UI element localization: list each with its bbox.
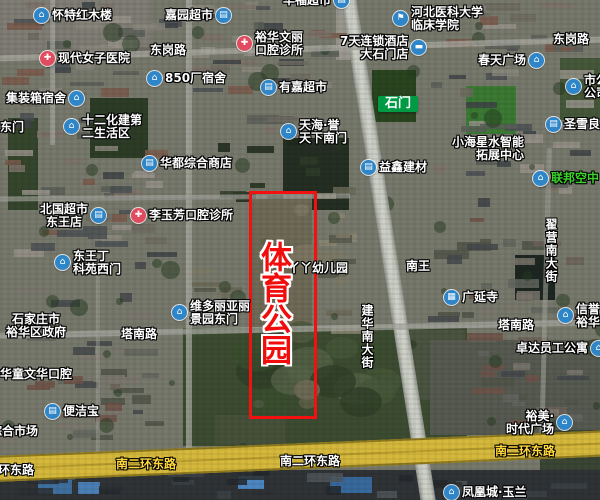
map-terrain-patch [250,183,264,189]
shop-icon[interactable]: ▤ [361,160,376,175]
map-terrain-patch [46,295,59,308]
poi-850-dorm[interactable]: ⌂850厂宿舍 [147,71,226,86]
map-terrain-patch [478,351,489,356]
map-terrain-patch [110,186,133,193]
shop-icon[interactable]: ▤ [334,0,349,8]
label-text: 南二环东路 [495,445,555,458]
map-terrain-patch [247,146,273,153]
label-text: 卓达员工公寓 [516,342,588,355]
map-terrain-patch [553,142,579,148]
label-text: 十二化建第二生活区 [82,114,142,140]
label-text: 益鑫建材 [379,161,427,174]
label-text: 南二环东路 [116,458,176,471]
map-terrain-patch [517,291,540,300]
poi-yumei-times-plaza[interactable]: 裕美·时代广场⌂ [506,410,572,436]
map-terrain-patch [523,271,532,280]
map-terrain-patch [78,482,100,494]
map-terrain-patch [112,225,132,230]
map-terrain-patch [213,60,241,65]
label-text: 东门 [0,121,24,134]
label-text: 维多丽亚丽景园东门 [190,300,250,326]
label-text: 综合市场 [0,425,38,438]
road-nanerhuan-left: 环东路 [0,464,34,477]
map-terrain-patch [557,376,589,380]
map-terrain-patch [328,212,340,224]
map-terrain-patch [484,109,503,128]
road-nanerhuan-yellow-1: 南二环东路 [116,458,176,471]
poi-xinyu-yuhua[interactable]: ⌂信誉裕华 [558,303,600,329]
map-terrain-patch [113,71,139,75]
map-terrain-patch [306,168,320,176]
shop-icon[interactable]: ▤ [216,8,231,23]
label-text: 广延寺 [462,291,498,304]
map-terrain-patch [67,434,73,440]
map-terrain-patch [277,61,308,65]
map-terrain-patch [466,102,497,108]
road-dongmen: 东门 [0,121,24,134]
map-terrain-patch [336,233,351,238]
label-text: 集装箱宿舍 [6,92,66,105]
house-icon[interactable]: ⌂ [591,341,600,356]
map-terrain-patch [105,403,122,412]
label-text: 翟营南大街 [544,218,557,283]
map-terrain-patch [564,400,579,405]
map-terrain-patch [541,3,573,8]
poi-liyufang-dental[interactable]: ✚李玉芳口腔诊所 [131,208,233,223]
map-terrain-patch [227,479,246,486]
map-terrain-patch [83,179,95,185]
poi-shengxueliang[interactable]: ▤圣雪良 [546,117,600,132]
map-terrain-patch [2,77,29,85]
map-terrain-patch [478,198,490,207]
map-terrain-patch [73,347,95,355]
map-terrain-patch [513,363,530,370]
map-terrain-patch [35,381,55,388]
map-terrain-patch [593,402,600,410]
map-terrain-patch [399,475,414,482]
label-text: 850厂宿舍 [165,72,226,85]
house-icon[interactable]: ⌂ [566,79,581,94]
poi-yixin-building-materials[interactable]: ▤益鑫建材 [361,160,427,175]
label-text: 南王 [406,260,430,273]
map-terrain-patch [18,488,53,496]
map-terrain-patch [217,491,232,500]
map-terrain-patch [481,371,495,378]
map-terrain-patch [193,88,222,92]
map-terrain-patch [254,22,264,30]
poi-zhuoda-staff-apartment[interactable]: 卓达员工公寓⌂ [516,341,600,356]
map-terrain-patch [253,491,274,495]
satellite-map-canvas[interactable]: 体育公园 ⌂怀特红木楼嘉园超市▤华福超市▤⚑河北医科大学临床学院东岗路东岗路✚现… [0,0,600,500]
map-terrain-patch [483,307,498,314]
map-terrain-patch [55,67,70,73]
map-terrain-patch [307,31,332,37]
poi-shi-gong-company[interactable]: ⌂市公公司 [566,74,600,100]
house-icon[interactable]: ⌂ [147,71,162,86]
label-text: 小海星水智能拓展中心 [452,136,524,162]
house-icon[interactable]: ⌂ [55,255,70,270]
road-jianhua-south-street: 建华南大街 [360,304,373,369]
label-text: 现代女子医院 [58,52,130,65]
label-text: 嘉园超市 [165,9,213,22]
label-text: 裕华童文华口腔 [0,368,72,381]
label-text: 天海·誉天下南门 [299,119,347,145]
label-text: 建华南大街 [360,304,373,369]
school-icon[interactable]: ⚑ [393,11,408,26]
map-terrain-patch [86,164,98,176]
map-terrain-patch [17,69,45,76]
label-text: 有嘉超市 [279,81,327,94]
map-terrain-patch [147,252,177,258]
map-terrain-patch [326,486,341,495]
medical-icon[interactable]: ✚ [40,51,55,66]
map-terrain-patch [570,150,591,156]
road-donggang-right: 东岗路 [553,33,589,46]
map-terrain-patch [81,354,104,360]
house-icon[interactable]: ⌂ [64,119,79,134]
label-text: 华福超市 [283,0,331,7]
poi-dongwang-keyuan-west-gate[interactable]: ⌂东王丁科苑西门 [55,250,121,276]
poi-jizhuangxiang-dorm[interactable]: 集装箱宿舍⌂ [6,91,84,106]
map-terrain-patch [215,415,285,445]
label-text: 华都综合商店 [160,157,232,170]
map-terrain-patch [28,33,39,40]
label-text: 怀特红木楼 [52,9,112,22]
map-terrain-patch [261,64,279,82]
map-terrain-patch [57,230,89,237]
poi-yuhuatong-wenhua-dental[interactable]: 裕华童文华口腔 [0,368,72,381]
map-terrain-patch [134,171,153,178]
map-terrain-patch [194,288,216,292]
map-terrain-patch [512,402,525,406]
map-terrain-patch [95,241,128,247]
label-text: 市公公司 [584,74,600,100]
map-terrain-patch [473,388,504,394]
map-terrain-patch [460,88,473,97]
label-text: 凤凰城·玉兰 [462,486,527,499]
road-tananlu-right: 塔南路 [498,319,534,332]
map-terrain-patch [431,82,442,88]
map-terrain-patch [447,255,462,263]
map-terrain-patch [173,477,188,482]
map-terrain-patch [9,165,25,173]
map-terrain-patch [65,159,83,164]
map-terrain-patch [407,65,420,78]
map-terrain-patch [219,281,231,293]
map-terrain-patch [169,380,175,386]
map-terrain-patch [103,23,122,42]
label-text: 丫丫幼儿园 [288,262,348,275]
map-terrain-patch [466,171,485,176]
map-terrain-patch [482,24,517,28]
poi-lianbang-kongzhong[interactable]: ⌂联邦空中 [533,171,599,186]
map-terrain-patch [145,237,167,245]
road-zhaiying-south-street: 翟营南大街 [544,218,557,283]
shop-icon[interactable]: ▤ [91,208,106,223]
shop-icon[interactable]: ▤ [261,80,276,95]
label-text: 东王丁科苑西门 [73,250,121,276]
house-icon[interactable]: ⌂ [281,124,296,139]
shop-icon[interactable]: ▤ [45,404,60,419]
house-icon[interactable]: ⌂ [444,485,459,500]
poi-shierhuajian-living-area[interactable]: ⌂十二化建第二生活区 [64,114,142,140]
poi-guangyan-temple[interactable]: ▦广延寺 [444,290,498,305]
map-terrain-patch [31,243,55,251]
poi-chuntian-plaza[interactable]: 春天广场⌂ [478,53,544,68]
map-terrain-patch [503,394,519,403]
map-terrain-patch [130,311,155,319]
map-terrain-patch [88,231,107,238]
map-terrain-patch [242,67,262,72]
map-terrain-patch [192,26,204,38]
shop-icon[interactable]: ▤ [546,117,561,132]
label-text: 东岗路 [553,33,589,46]
medical-icon[interactable]: ✚ [131,208,146,223]
map-terrain-patch [5,160,21,165]
poi-huafu-supermarket[interactable]: 华福超市▤ [283,0,349,8]
map-terrain-patch [331,313,338,320]
map-terrain-patch [481,378,515,386]
road-nanerhuan-white: 南二环东路 [280,455,340,468]
road-nanwang: 南王 [406,260,430,273]
poi-victoria-gardens-east-gate[interactable]: ⌂维多丽亚丽景园东门 [172,300,250,326]
map-terrain-patch [191,282,221,287]
label-text: 春天广场 [478,54,526,67]
map-terrain-patch [218,143,230,152]
poi-yaya-kindergarten[interactable]: 丫丫幼儿园 [288,262,348,275]
road-nanerhuan-yellow-2: 南二环东路 [495,445,555,458]
label-text: 李玉芳口腔诊所 [149,209,233,222]
map-terrain-patch [116,298,122,304]
road-donggang-left: 东岗路 [150,44,186,57]
house-icon[interactable]: ⌂ [557,415,572,430]
tag-shimen[interactable]: 石门 [378,96,418,112]
house-icon[interactable]: ⌂ [529,53,544,68]
map-terrain-patch [503,239,515,247]
map-terrain-patch [135,262,146,269]
label-text: 7天连锁酒店大石门店 [340,35,408,61]
map-terrain-patch [449,75,466,79]
map-terrain-patch [103,172,125,179]
poi-huadu-store[interactable]: ▤华都综合商店 [142,156,232,171]
label-text: 石门 [378,96,418,112]
map-terrain-patch [510,14,536,22]
map-terrain-patch [256,6,270,10]
map-terrain-patch [70,299,87,316]
map-terrain-patch [70,82,104,86]
map-terrain-patch [471,112,478,119]
highlight-label: 体育公园 [257,241,288,365]
map-terrain-patch [503,307,520,311]
house-icon[interactable]: ⌂ [558,308,573,323]
house-icon[interactable]: ⌂ [172,305,187,320]
map-terrain-patch [96,255,100,470]
poi-yuhua-wenli-dental[interactable]: ✚裕华文丽口腔诊所 [237,31,303,57]
label-text: 北国超市东王店 [40,203,88,229]
map-terrain-patch [526,375,539,382]
map-terrain-patch [485,3,520,11]
map-terrain-patch [567,370,583,375]
poi-xiandai-women-hospital[interactable]: ✚现代女子医院 [40,51,130,66]
map-terrain-patch [132,224,155,233]
map-terrain-patch [481,283,492,289]
label-text: 环东路 [0,464,34,477]
map-terrain-patch [434,221,446,233]
label-text: 信誉裕华 [576,303,600,329]
poi-shijiazhuang-yuhua-gov[interactable]: 石家庄市裕华区政府 [6,313,66,339]
map-terrain-patch [22,190,50,195]
map-terrain-patch [336,277,347,286]
map-terrain-patch [56,424,82,430]
label-text: 石家庄市裕华区政府 [6,313,66,339]
map-terrain-patch [470,218,484,223]
map-terrain-patch [112,214,127,222]
label-text: 河北医科大学临床学院 [411,6,483,32]
poi-beiguo-supermarket-dongwang[interactable]: 北国超市东王店▤ [40,203,106,229]
map-terrain-patch [307,473,343,482]
map-terrain-patch [99,418,114,433]
label-text: 东岗路 [150,44,186,57]
map-terrain-patch [377,491,398,499]
map-terrain-patch [300,157,318,164]
label-text: 塔南路 [498,319,534,332]
house-icon[interactable]: ⌂ [34,8,49,23]
map-terrain-patch [253,471,271,476]
map-terrain-patch [151,23,165,30]
map-terrain-patch [566,257,585,265]
map-terrain-patch [142,373,159,377]
poi-huaite-hongmulou[interactable]: ⌂怀特红木楼 [34,8,112,23]
map-terrain-patch [326,337,358,359]
map-terrain-patch [146,181,163,188]
map-terrain-patch [133,24,151,29]
temple-icon[interactable]: ▦ [444,290,459,305]
map-terrain-patch [492,69,519,76]
label-text: 便洁宝 [63,405,99,418]
map-terrain-patch [508,279,540,288]
map-terrain-patch [95,146,117,151]
map-terrain-patch [467,333,502,341]
poi-jiayuan-supermarket[interactable]: 嘉园超市▤ [165,8,231,23]
map-terrain-patch [462,312,474,318]
map-terrain-patch [161,261,180,280]
map-terrain-patch [145,421,164,426]
poi-fenghuangcheng-yulan[interactable]: ⌂凤凰城·玉兰 [444,485,527,500]
map-terrain-patch [487,417,496,426]
label-text: 南二环东路 [280,455,340,468]
poi-xiaohaixing-center[interactable]: 小海星水智能拓展中心 [452,136,524,162]
map-terrain-patch [227,5,259,9]
label-text: 塔南路 [121,328,157,341]
shop-icon[interactable]: ▤ [142,156,157,171]
map-terrain-patch [551,483,587,489]
map-terrain-patch [133,410,143,414]
map-terrain-patch [152,259,162,269]
map-terrain-patch [529,164,535,170]
poi-tianhai-yutianxia-south-gate[interactable]: ⌂天海·誉天下南门 [281,119,347,145]
poi-youjia-supermarket[interactable]: ▤有嘉超市 [261,80,327,95]
map-terrain-patch [428,316,458,323]
medical-icon[interactable]: ✚ [237,36,252,51]
map-terrain-patch [202,34,225,41]
label-text: 联邦空中 [551,172,599,185]
map-terrain-patch [560,47,574,51]
map-terrain-patch [103,350,111,358]
road-tananlu-left: 塔南路 [121,328,157,341]
label-text: 圣雪良 [564,118,600,131]
map-terrain-patch [114,389,122,397]
map-terrain-patch [265,127,276,134]
map-terrain-patch [235,158,250,173]
map-terrain-patch [5,150,33,155]
poi-hebei-medical-college[interactable]: ⚑河北医科大学临床学院 [393,6,483,32]
map-terrain-patch [132,395,151,404]
map-terrain-patch [497,161,511,167]
map-terrain-patch [13,288,49,293]
map-terrain-patch [480,239,492,246]
hotel-icon[interactable]: ▬ [411,40,426,55]
map-terrain-patch [512,258,535,264]
poi-7days-hotel[interactable]: 7天连锁酒店大石门店▬ [340,35,426,61]
house-icon[interactable]: ⌂ [69,91,84,106]
map-terrain-patch [122,35,140,53]
poi-zonghe-market[interactable]: 综合市场 [0,425,38,438]
map-terrain-patch [559,187,572,193]
map-terrain-patch [433,165,445,173]
map-terrain-patch [326,310,352,316]
map-terrain-patch [99,486,124,490]
label-text: 裕美·时代广场 [506,410,554,436]
house-icon[interactable]: ⌂ [533,171,548,186]
map-terrain-patch [7,23,43,30]
poi-bianjiebao[interactable]: ▤便洁宝 [45,404,99,419]
map-terrain-patch [101,88,129,97]
label-text: 裕华文丽口腔诊所 [255,31,303,57]
map-terrain-patch [124,349,158,356]
map-terrain-patch [501,371,525,377]
map-terrain-patch [566,100,595,108]
